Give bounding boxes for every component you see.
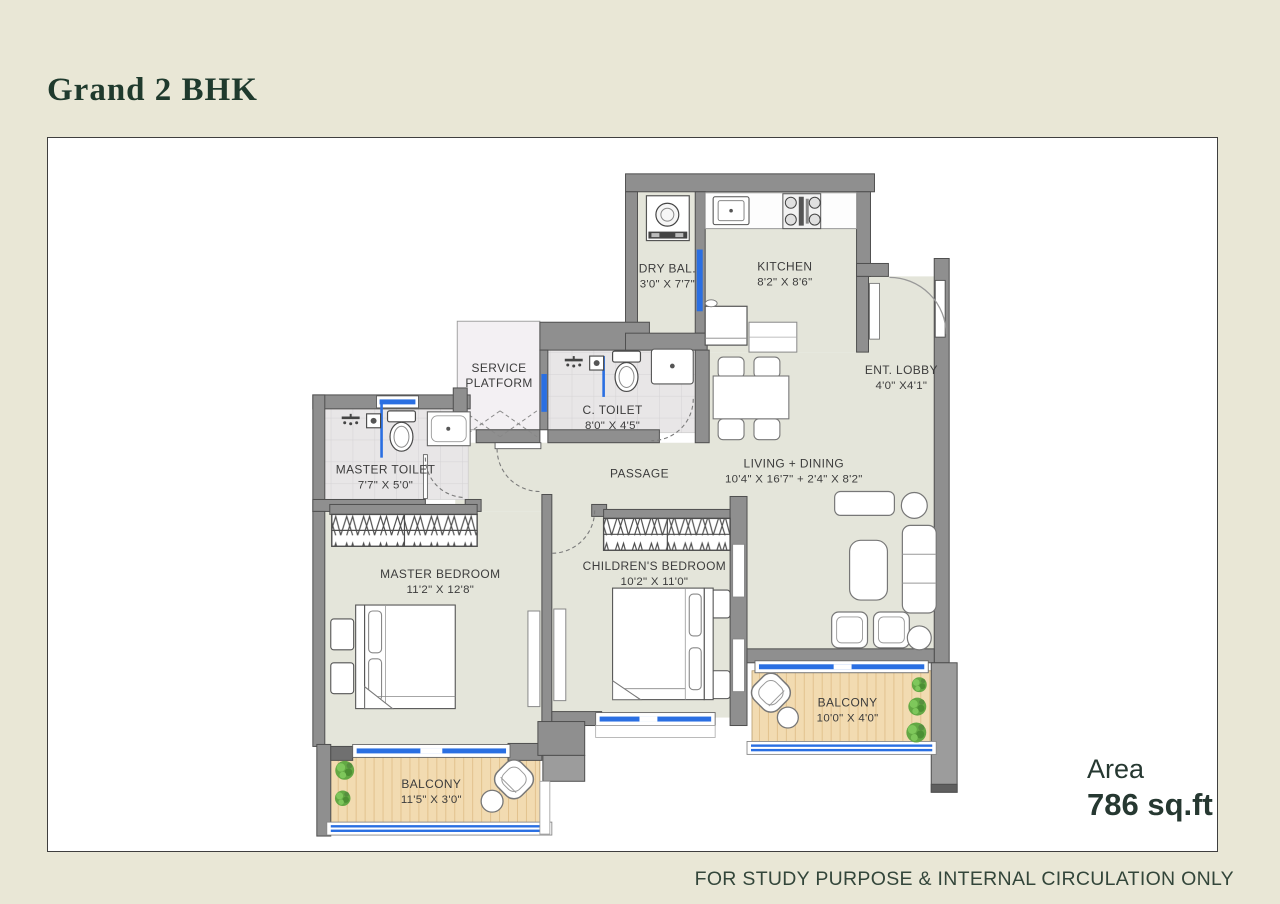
svg-text:DRY BAL.: DRY BAL. xyxy=(639,261,696,275)
window-childrens-gap xyxy=(639,717,657,722)
sliding-panel-childrens-right-1 xyxy=(733,544,745,597)
page: { "page": { "title": "Grand 2 BHK", "are… xyxy=(0,0,1280,904)
balcony-table xyxy=(481,790,503,812)
pillow xyxy=(689,648,701,690)
dining-table xyxy=(713,376,789,419)
svg-text:CHILDREN'S BEDROOM: CHILDREN'S BEDROOM xyxy=(583,559,726,573)
wall-ctoilet-right xyxy=(695,350,709,443)
side-table xyxy=(907,626,931,650)
svg-text:8'0" X 4'5": 8'0" X 4'5" xyxy=(585,420,640,432)
wall-bedroom-divider xyxy=(542,494,552,755)
sliding-panel-childrens xyxy=(554,609,566,701)
pillow xyxy=(689,594,701,636)
kitchen-hob xyxy=(783,194,821,229)
svg-text:7'7" X 5'0": 7'7" X 5'0" xyxy=(358,480,413,492)
plant-icon xyxy=(335,761,354,780)
svg-text:KITCHEN: KITCHEN xyxy=(757,259,812,273)
page-title: Grand 2 BHK xyxy=(47,72,258,109)
dining-chair xyxy=(754,357,780,378)
balcony-table xyxy=(777,707,798,728)
wall-master-bottom-right xyxy=(508,743,542,760)
svg-text:10'2" X 11'0": 10'2" X 11'0" xyxy=(621,576,689,588)
sofa xyxy=(902,525,936,613)
wardrobe-childrens xyxy=(604,518,730,550)
wall-lobby-nub xyxy=(857,263,889,276)
nightstand xyxy=(711,671,730,699)
svg-text:MASTER TOILET: MASTER TOILET xyxy=(336,463,436,477)
coffee-table xyxy=(850,540,888,600)
sill-balcony-left-side xyxy=(540,781,550,834)
pillow xyxy=(369,611,382,653)
wall-kitchen-top xyxy=(626,174,875,192)
shower-tray xyxy=(427,412,470,446)
plant-icon xyxy=(912,677,927,692)
railing-balcony-right-line1 xyxy=(751,744,932,746)
dining-chair xyxy=(754,419,780,440)
area-block: Area 786 sq.ft xyxy=(1087,753,1213,824)
headboard xyxy=(704,588,713,700)
duct-block xyxy=(931,663,957,792)
svg-text:BALCONY: BALCONY xyxy=(401,777,461,791)
sill-childrens xyxy=(596,726,715,738)
wall-childrens-wardrobe-top xyxy=(604,509,730,518)
svg-text:11'2" X 12'8": 11'2" X 12'8" xyxy=(406,584,474,596)
area-label: Area xyxy=(1087,753,1213,786)
svg-text:MASTER BEDROOM: MASTER BEDROOM xyxy=(380,567,500,581)
wall-below-drybal xyxy=(626,333,708,350)
bed-childrens xyxy=(613,588,731,700)
window-living-gap xyxy=(834,664,852,669)
basin xyxy=(651,349,693,384)
nightstand xyxy=(711,590,730,618)
svg-text:C. TOILET: C. TOILET xyxy=(582,403,643,417)
window-drybal xyxy=(697,250,703,312)
plant-icon xyxy=(335,790,351,806)
floor-plan: DRY BAL. 3'0" X 7'7" KITCHEN 8'2" X 8'6"… xyxy=(48,138,1216,850)
window-service xyxy=(541,374,546,412)
svg-text:ENT. LOBBY: ENT. LOBBY xyxy=(865,363,938,377)
svg-text:11'5" X 3'0": 11'5" X 3'0" xyxy=(401,794,462,806)
svg-text:BALCONY: BALCONY xyxy=(818,696,878,710)
toilet-icon xyxy=(613,351,641,391)
plant-icon xyxy=(908,698,926,716)
wall-master-wardrobe-top xyxy=(330,504,477,514)
fridge xyxy=(705,300,747,345)
washing-machine xyxy=(646,196,689,241)
window-master-bedroom-gap xyxy=(420,748,442,753)
wardrobe-master xyxy=(332,514,477,546)
wall-master-toilet-right xyxy=(453,388,467,412)
dining-chair xyxy=(718,419,744,440)
svg-text:10'0" X 4'0": 10'0" X 4'0" xyxy=(817,713,879,725)
wall-corner-block-2 xyxy=(543,755,585,781)
floor-plan-panel: DRY BAL. 3'0" X 7'7" KITCHEN 8'2" X 8'6"… xyxy=(47,137,1218,852)
window-lobby-side xyxy=(869,283,879,339)
railing-balcony-right-frame xyxy=(747,741,936,754)
svg-text:10'4" X 16'7" + 2'4" X 8'2": 10'4" X 16'7" + 2'4" X 8'2" xyxy=(725,474,863,486)
headboard xyxy=(356,605,365,709)
area-value: 786 sq.ft xyxy=(1087,786,1213,824)
railing-balcony-left-frame xyxy=(327,822,552,835)
railing-balcony-left-line1 xyxy=(331,825,548,827)
svg-text:8'2" X 8'6": 8'2" X 8'6" xyxy=(757,276,812,288)
wall-corner-block xyxy=(538,722,585,756)
nightstand xyxy=(331,619,354,650)
room-label-passage: PASSAGE xyxy=(610,467,669,481)
tv-unit xyxy=(835,492,895,516)
footer-disclaimer: FOR STUDY PURPOSE & INTERNAL CIRCULATION… xyxy=(695,868,1234,891)
svg-text:4'0" X4'1": 4'0" X4'1" xyxy=(875,380,927,392)
svg-text:LIVING + DINING: LIVING + DINING xyxy=(744,457,845,471)
nightstand xyxy=(331,663,354,694)
plant-icon xyxy=(906,723,926,743)
dining-chair xyxy=(718,357,744,378)
side-table xyxy=(901,493,927,519)
kitchen-counter xyxy=(705,193,856,229)
svg-text:PASSAGE: PASSAGE xyxy=(610,467,669,481)
svg-text:SERVICE: SERVICE xyxy=(472,361,527,375)
railing-balcony-left-line2 xyxy=(331,830,548,832)
wall-master-toilet-left xyxy=(313,395,325,512)
svg-text:3'0" X 7'7": 3'0" X 7'7" xyxy=(640,278,695,290)
sliding-panel-childrens-right-2 xyxy=(733,639,745,692)
window-master-toilet xyxy=(380,399,416,404)
room-label-service-platform: SERVICE PLATFORM xyxy=(465,361,532,390)
sliding-panel-master xyxy=(528,611,540,707)
wall-master-bedroom-left xyxy=(313,511,325,746)
wall-master-bottom-left xyxy=(331,746,353,760)
toilet-icon xyxy=(388,411,416,451)
master-bedroom-door-leaf xyxy=(495,443,541,449)
duct-cap xyxy=(931,784,957,792)
wall-kitchen-lobby xyxy=(857,276,869,352)
railing-balcony-right-line2 xyxy=(751,749,932,751)
svg-text:PLATFORM: PLATFORM xyxy=(465,376,532,390)
kitchen-side-counter xyxy=(749,322,797,352)
